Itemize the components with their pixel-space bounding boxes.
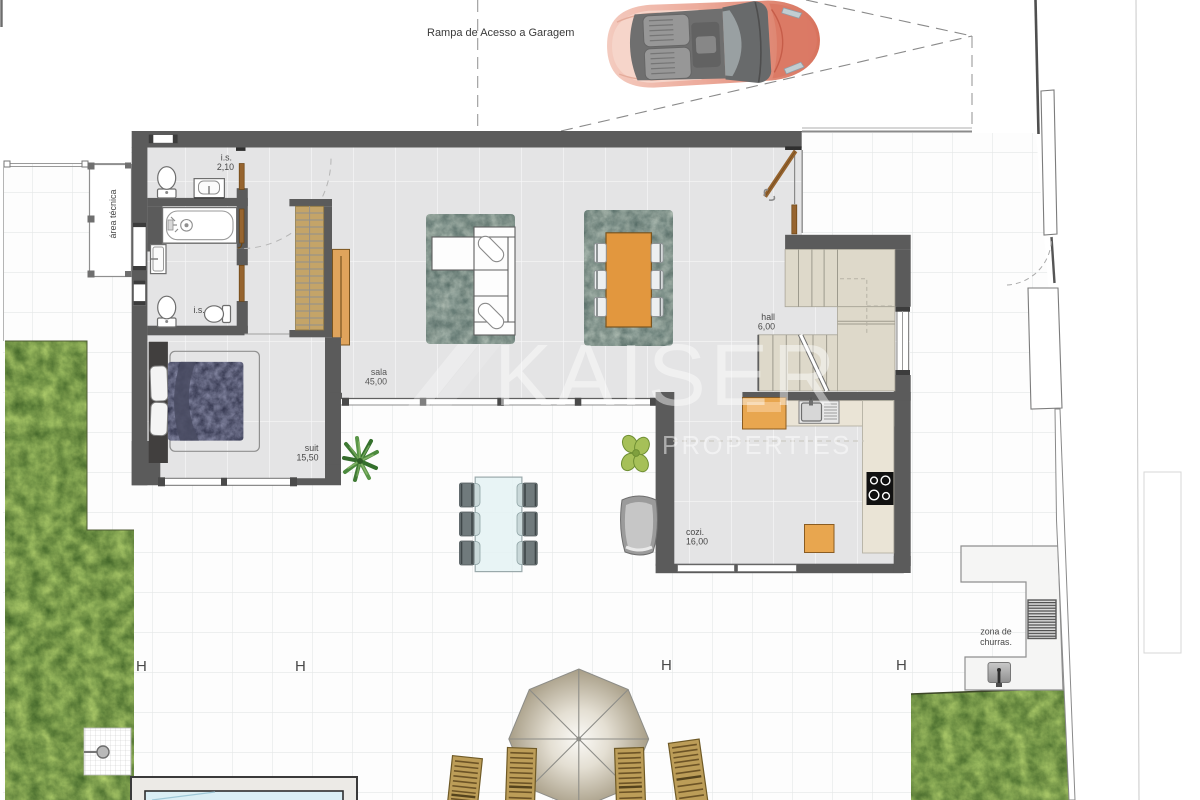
svg-text:churras.: churras. [980, 637, 1012, 647]
svg-text:suit: suit [305, 443, 319, 453]
svg-text:H: H [896, 657, 907, 674]
svg-text:zona de: zona de [980, 627, 1011, 637]
svg-text:6,00: 6,00 [758, 322, 775, 332]
svg-text:15,50: 15,50 [296, 453, 318, 463]
svg-text:cozi.: cozi. [686, 527, 704, 537]
svg-text:i.s.: i.s. [194, 305, 205, 315]
svg-text:PROPERTIES: PROPERTIES [662, 432, 852, 460]
svg-text:sala: sala [371, 367, 387, 377]
svg-text:H: H [136, 658, 147, 675]
svg-text:2,10: 2,10 [217, 162, 234, 172]
svg-text:45,00: 45,00 [365, 377, 387, 387]
svg-text:área técnica: área técnica [108, 189, 118, 238]
svg-text:KAISER: KAISER [494, 327, 840, 424]
svg-text:i.s.: i.s. [221, 153, 232, 163]
svg-text:16,00: 16,00 [686, 537, 708, 547]
svg-text:hall: hall [761, 312, 775, 322]
svg-text:H: H [295, 658, 306, 675]
svg-text:H: H [661, 657, 672, 674]
svg-text:Rampa de Acesso a Garagem: Rampa de Acesso a Garagem [427, 27, 574, 39]
